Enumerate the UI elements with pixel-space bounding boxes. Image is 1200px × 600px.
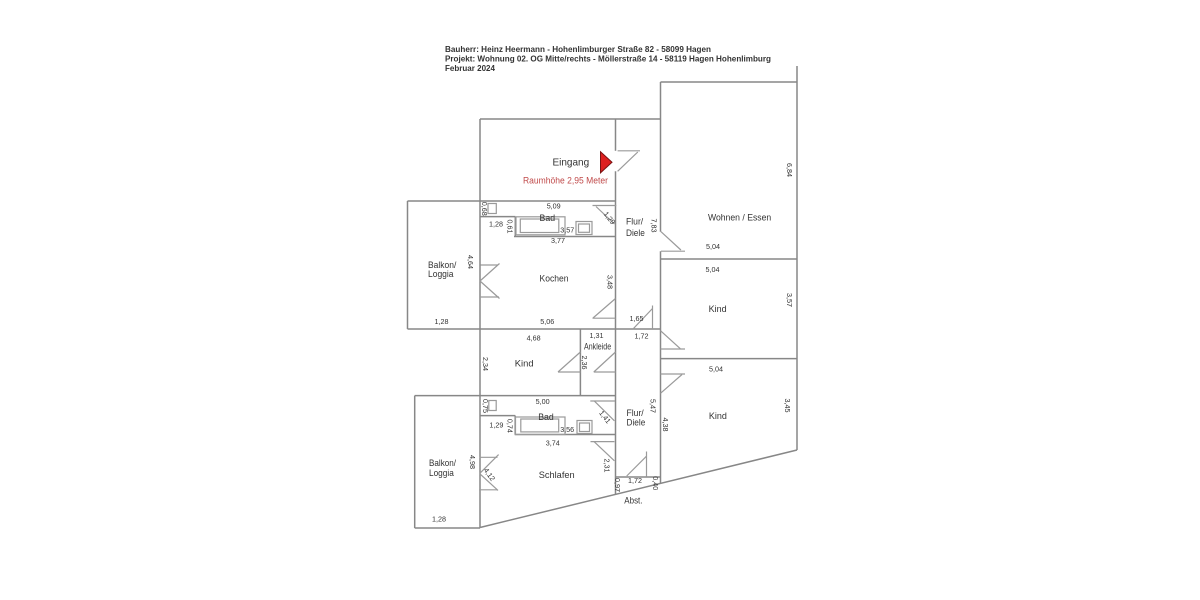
svg-text:Projekt: Wohnung 02. OG Mitte/: Projekt: Wohnung 02. OG Mitte/rechts - M… xyxy=(445,54,771,64)
svg-text:0,97: 0,97 xyxy=(613,478,622,492)
svg-text:Kind: Kind xyxy=(709,304,727,315)
svg-text:Schlafen: Schlafen xyxy=(539,470,575,481)
svg-text:4,64: 4,64 xyxy=(466,255,475,269)
svg-text:Wohnen / Essen: Wohnen / Essen xyxy=(708,213,771,224)
svg-text:Eingang: Eingang xyxy=(552,157,589,169)
svg-text:5,06: 5,06 xyxy=(540,317,554,326)
svg-text:3,77: 3,77 xyxy=(551,236,565,245)
svg-text:Bad: Bad xyxy=(538,412,554,423)
svg-text:3,48: 3,48 xyxy=(606,275,615,289)
svg-text:3,45: 3,45 xyxy=(783,399,792,413)
svg-text:5,04: 5,04 xyxy=(706,242,720,251)
svg-text:6,84: 6,84 xyxy=(785,163,794,177)
svg-text:1,28: 1,28 xyxy=(435,317,449,326)
svg-text:Februar 2024: Februar 2024 xyxy=(445,63,495,73)
svg-text:Bauherr: Heinz Heermann - Hohe: Bauherr: Heinz Heermann - Hohenlimburger… xyxy=(445,44,711,54)
svg-text:1,65: 1,65 xyxy=(630,314,644,323)
svg-text:Abst.: Abst. xyxy=(624,495,642,506)
svg-text:3,57: 3,57 xyxy=(785,293,794,307)
svg-text:Kind: Kind xyxy=(709,411,727,422)
svg-text:3,57: 3,57 xyxy=(560,225,574,234)
svg-text:Kochen: Kochen xyxy=(540,274,569,285)
svg-text:1,29: 1,29 xyxy=(489,420,503,429)
svg-text:Diele: Diele xyxy=(627,418,646,429)
svg-text:4,68: 4,68 xyxy=(527,333,541,342)
svg-text:0,74: 0,74 xyxy=(505,419,514,433)
svg-text:1,28: 1,28 xyxy=(489,219,503,228)
svg-text:Flur/: Flur/ xyxy=(626,217,644,228)
svg-text:Loggia: Loggia xyxy=(429,468,454,479)
svg-text:1,72: 1,72 xyxy=(635,332,649,341)
svg-text:0,40: 0,40 xyxy=(651,476,660,490)
svg-text:3,56: 3,56 xyxy=(560,425,574,434)
svg-text:5,04: 5,04 xyxy=(706,265,720,274)
svg-text:7,83: 7,83 xyxy=(650,219,659,233)
svg-text:Diele: Diele xyxy=(626,228,645,239)
svg-text:0,75: 0,75 xyxy=(481,399,490,413)
svg-text:2,31: 2,31 xyxy=(602,459,611,473)
svg-text:Loggia: Loggia xyxy=(428,269,454,280)
svg-text:Kind: Kind xyxy=(515,359,534,370)
svg-text:4,38: 4,38 xyxy=(661,418,670,432)
svg-text:4,98: 4,98 xyxy=(468,455,477,469)
svg-text:5,47: 5,47 xyxy=(648,399,657,413)
svg-text:1,31: 1,31 xyxy=(590,331,604,340)
svg-text:Ankleide: Ankleide xyxy=(584,342,611,353)
svg-text:3,74: 3,74 xyxy=(546,439,560,448)
svg-text:0,68: 0,68 xyxy=(480,202,489,216)
svg-text:1,28: 1,28 xyxy=(432,515,446,524)
svg-text:4,12: 4,12 xyxy=(482,466,497,483)
svg-text:5,04: 5,04 xyxy=(709,365,723,374)
svg-text:1,72: 1,72 xyxy=(628,476,642,485)
svg-text:Raumhöhe 2,95 Meter: Raumhöhe 2,95 Meter xyxy=(523,176,608,186)
svg-text:2,36: 2,36 xyxy=(580,356,589,370)
svg-text:1,41: 1,41 xyxy=(597,409,613,426)
svg-text:5,09: 5,09 xyxy=(547,202,561,211)
svg-text:2,34: 2,34 xyxy=(481,357,490,371)
svg-text:5,00: 5,00 xyxy=(536,397,550,406)
svg-text:Bad: Bad xyxy=(540,213,556,224)
svg-text:0,61: 0,61 xyxy=(506,220,515,234)
